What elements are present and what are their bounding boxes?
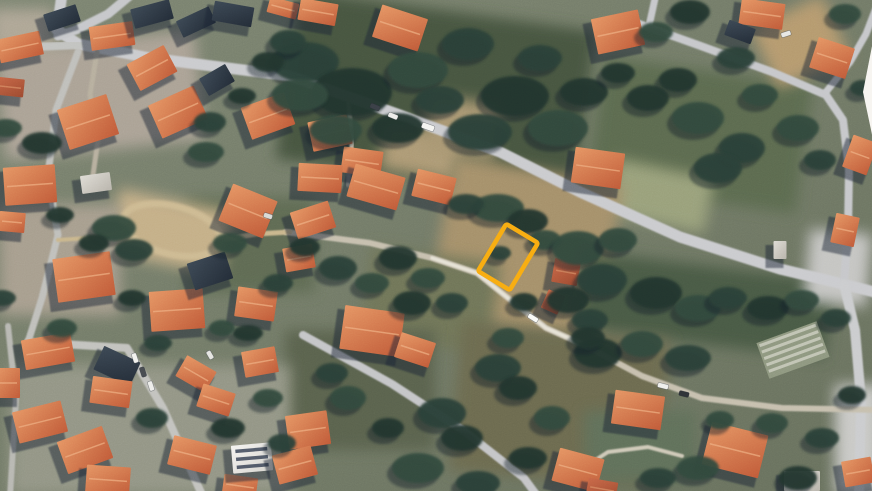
satellite-map-image [0,0,872,491]
photo-grain-overlay [0,0,872,491]
satellite-photo [0,0,872,491]
